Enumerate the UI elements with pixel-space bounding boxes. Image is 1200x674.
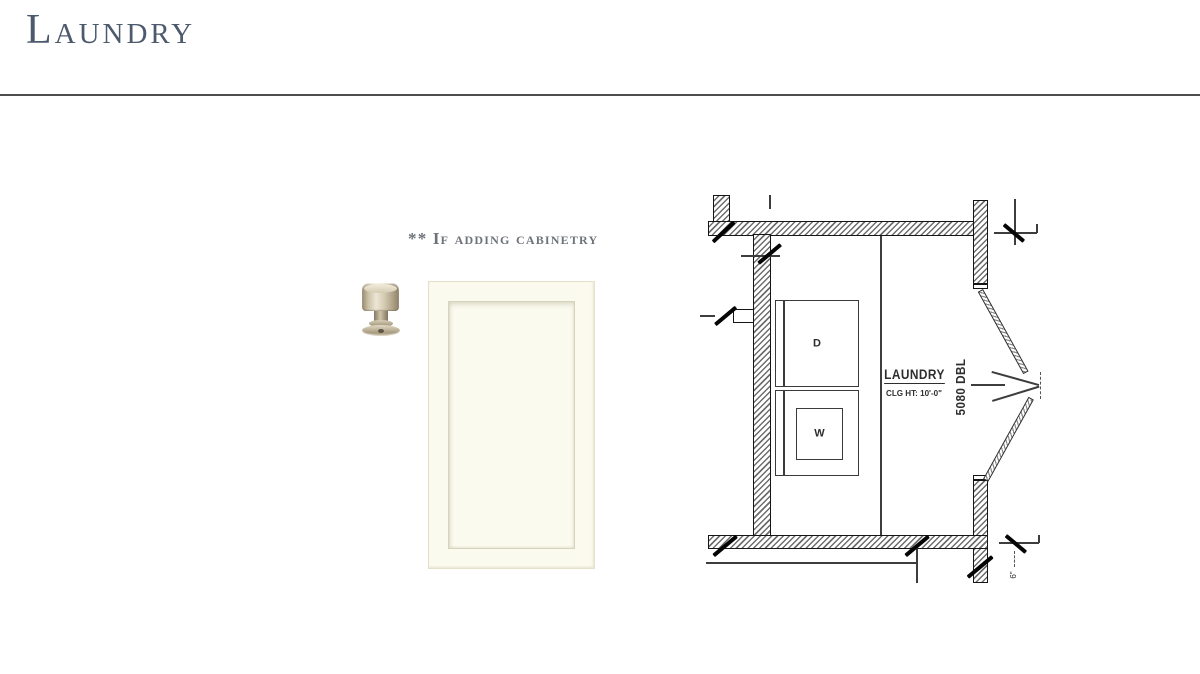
door-leaf-lower: [983, 397, 1034, 482]
room-label: LAUNDRY: [877, 367, 952, 382]
wall-notch: [733, 309, 754, 323]
dimension-line-left: [741, 255, 780, 257]
cabinetry-note: ** If adding cabinetry: [408, 229, 598, 249]
wall-bottom: [708, 535, 988, 549]
extension-line-top: [769, 195, 771, 209]
wall-left: [753, 234, 771, 536]
page-title: Laundry: [26, 6, 195, 54]
dimension-hook-bottom-right: [1038, 535, 1040, 543]
shaker-cabinet-door-image: [428, 281, 595, 569]
laundry-floor-plan: D W: [700, 185, 1085, 615]
door-meeting-dash: [1040, 372, 1041, 399]
interior-partition-line: [880, 236, 882, 535]
wall-stub-top-left: [713, 195, 730, 222]
wall-right-upper: [973, 200, 988, 284]
dryer-box: D: [775, 300, 859, 387]
washer-door-line: [783, 391, 785, 475]
small-dimension-label: 6": [1009, 564, 1019, 586]
wall-top: [708, 221, 974, 236]
knob-cap-highlight: [364, 284, 397, 293]
door-jamb-upper: [973, 284, 988, 289]
cabinet-door-recessed-panel: [448, 301, 575, 549]
dimension-hook-top-right: [1036, 224, 1038, 233]
door-leaf-upper: [978, 289, 1029, 374]
door-centerline: [971, 384, 1005, 386]
washer-box: W: [775, 390, 859, 476]
knob-screw: [378, 329, 384, 333]
page: Laundry ** If adding cabinetry D: [0, 0, 1200, 674]
washer-label: W: [797, 427, 842, 439]
dryer-label: D: [776, 337, 858, 349]
ceiling-height-note: CLG HT: 10'-0": [870, 388, 957, 398]
notch-dimension-line: [700, 315, 715, 317]
cabinet-knob-image: [361, 280, 401, 338]
tick-dim-bottom-right: [1005, 534, 1027, 553]
washer-drum: W: [796, 408, 843, 460]
door-size-label: 5080 DBL: [953, 347, 969, 428]
extension-line-bottom-center: [916, 548, 918, 583]
title-divider: [0, 94, 1200, 96]
dimension-line-bottom: [706, 562, 917, 564]
extension-line-top-right: [1014, 199, 1016, 245]
